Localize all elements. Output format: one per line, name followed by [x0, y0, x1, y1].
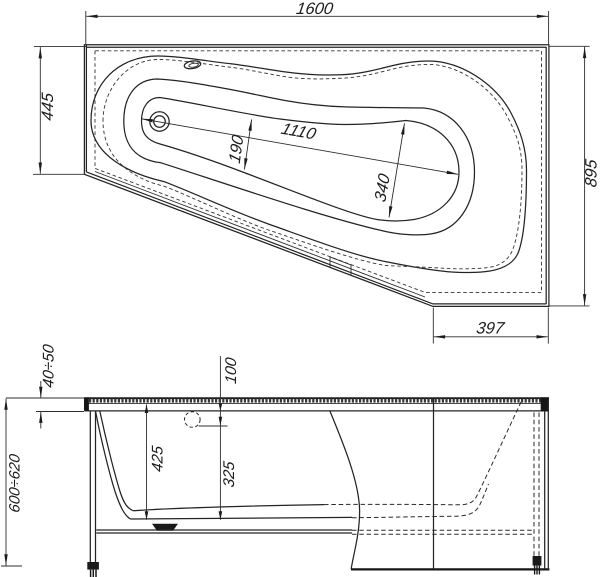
- svg-text:445: 445: [38, 91, 57, 122]
- svg-text:425: 425: [150, 444, 167, 473]
- svg-text:325: 325: [221, 460, 238, 489]
- svg-text:1600: 1600: [295, 0, 335, 18]
- svg-text:895: 895: [582, 157, 600, 188]
- svg-text:600÷620: 600÷620: [6, 452, 23, 513]
- svg-text:340: 340: [371, 171, 394, 205]
- svg-text:40÷50: 40÷50: [41, 343, 58, 389]
- svg-text:100: 100: [223, 356, 240, 385]
- svg-text:397: 397: [475, 319, 506, 338]
